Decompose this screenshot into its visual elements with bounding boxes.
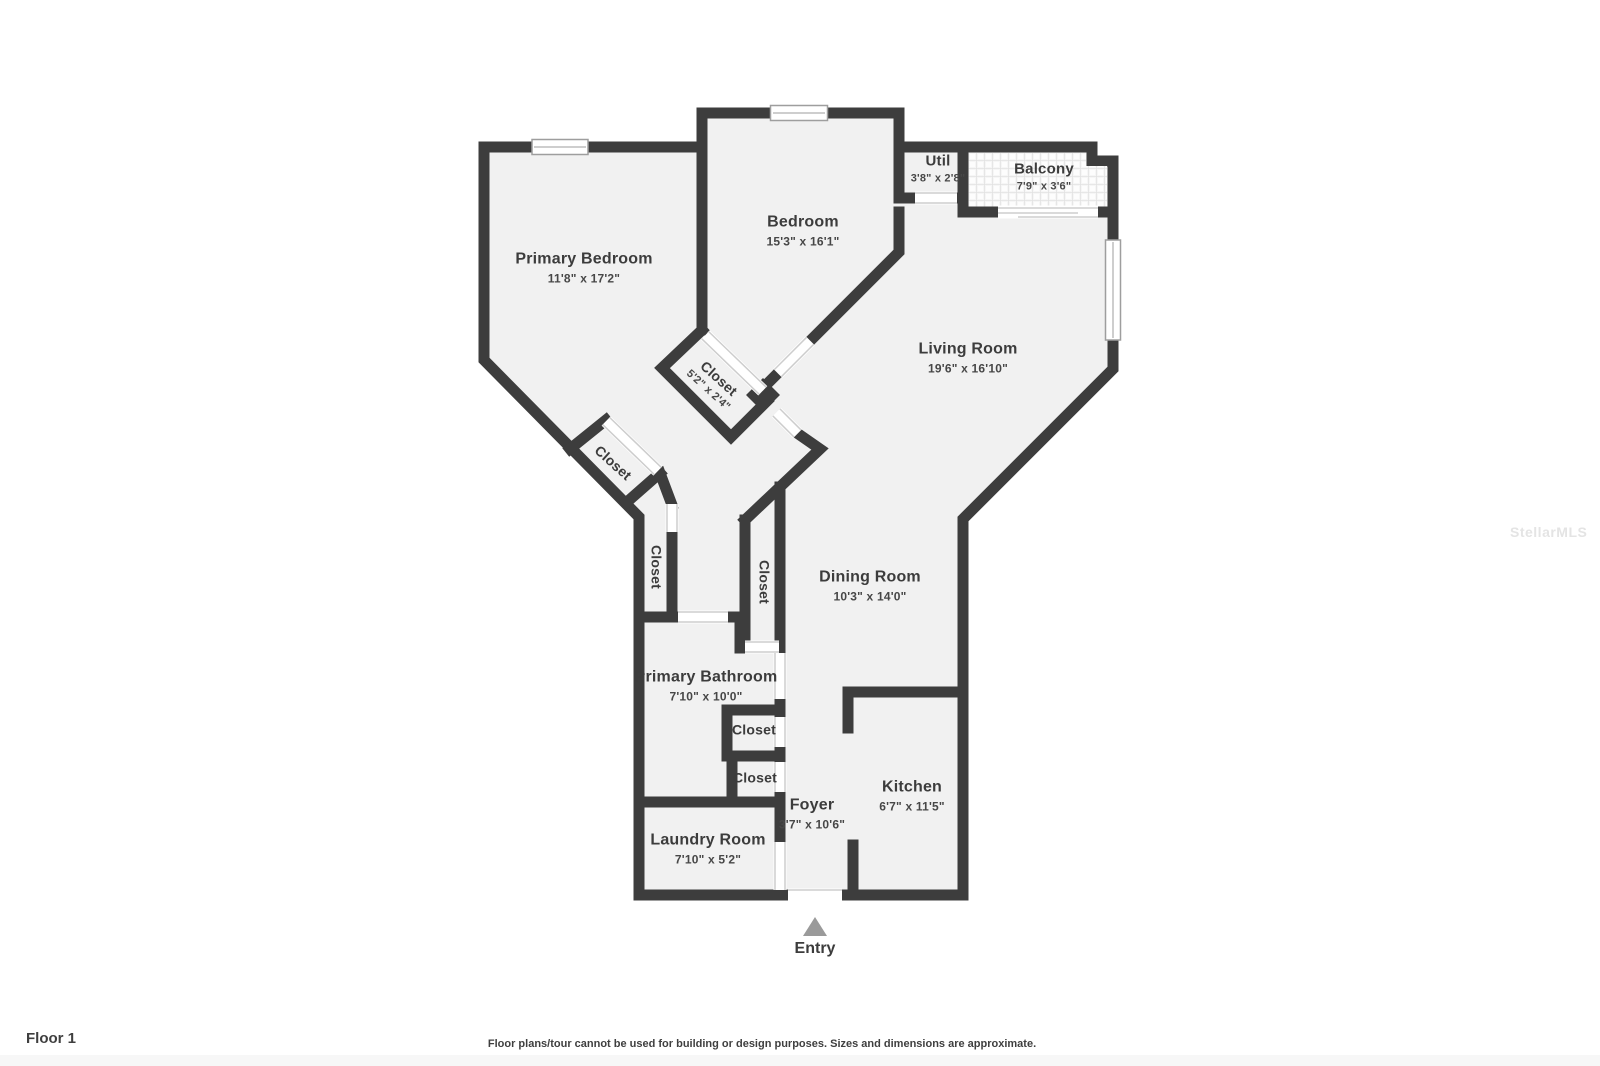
door-opening-right-closet	[745, 641, 779, 654]
room-label-living-room: Living Room 19'6" x 16'10"	[918, 340, 1017, 377]
window-bedroom	[771, 106, 828, 121]
room-label-dining-room: Dining Room 10'3" x 14'0"	[819, 568, 921, 605]
room-label-closet-bathroom-lower: Closet	[733, 770, 777, 787]
door-opening-laundry	[774, 842, 787, 890]
room-label-primary-bathroom: Primary Bathroom 7'10" x 10'0"	[635, 668, 778, 705]
room-label-closet-bathroom-upper: Closet	[732, 722, 776, 739]
floor-number-label: Floor 1	[26, 1030, 76, 1047]
door-opening-left-closet	[666, 504, 679, 532]
room-label-kitchen: Kitchen 6'7" x 11'5"	[879, 778, 945, 815]
disclaimer-text: Floor plans/tour cannot be used for buil…	[488, 1038, 1036, 1050]
room-label-bedroom: Bedroom 15'3" x 16'1"	[766, 213, 839, 250]
door-opening-util	[915, 192, 957, 205]
window-primary-bedroom	[532, 140, 588, 155]
room-label-util: Util 3'8" x 2'8"	[911, 152, 966, 185]
window-living-room	[1106, 240, 1121, 340]
floorplan-drawing	[0, 0, 1600, 1066]
door-opening-bathroom	[678, 611, 728, 624]
room-label-balcony: Balcony 7'9" x 3'6"	[1014, 160, 1074, 193]
entry-opening	[788, 889, 842, 902]
room-label-closet-left-vertical: Closet	[648, 545, 665, 589]
entry-label: Entry	[795, 940, 836, 958]
room-label-closet-right-vertical: Closet	[756, 560, 773, 604]
room-label-primary-bedroom: Primary Bedroom 11'8" x 17'2"	[515, 250, 652, 287]
entry-arrow-icon	[803, 917, 827, 936]
door-opening-balcony-slider	[998, 206, 1098, 219]
room-label-foyer: Foyer 3'7" x 10'6"	[779, 796, 845, 833]
room-label-laundry-room: Laundry Room 7'10" x 5'2"	[650, 831, 765, 868]
mls-watermark: StellarMLS	[1510, 524, 1587, 540]
floorplan-page: Primary Bedroom 11'8" x 17'2" Bedroom 15…	[0, 0, 1600, 1066]
bottom-divider	[0, 1055, 1600, 1066]
